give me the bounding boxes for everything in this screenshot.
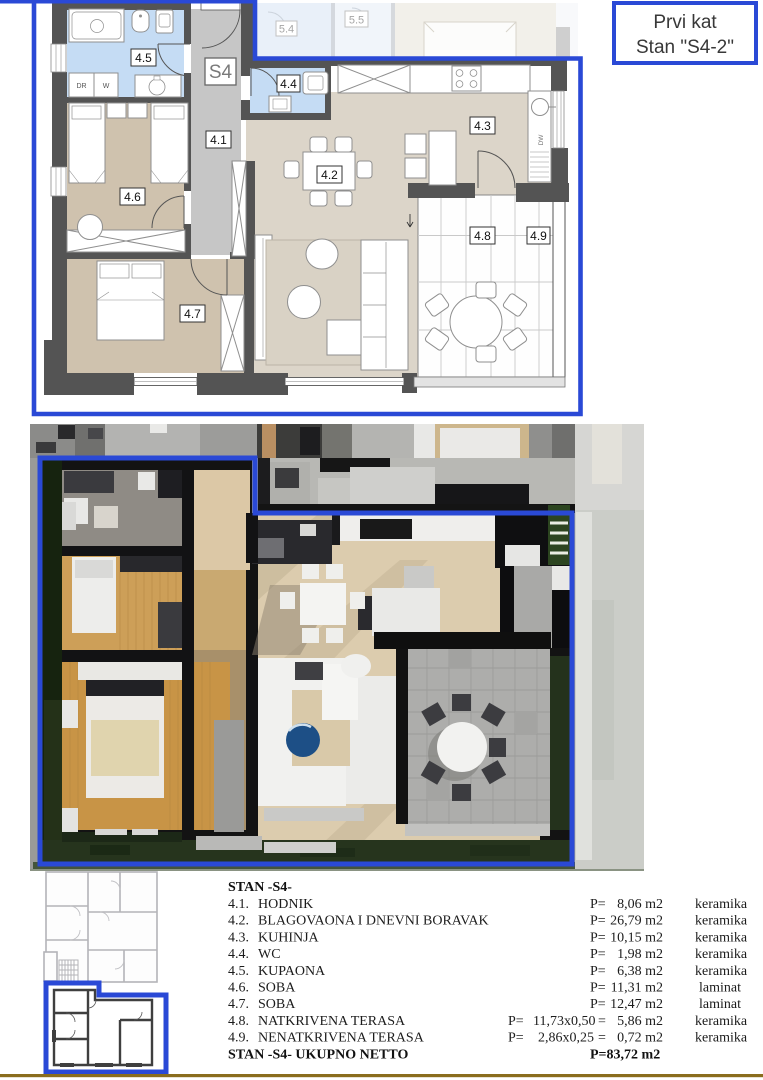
svg-text:SOBA: SOBA [258, 981, 296, 996]
svg-text:4.6: 4.6 [124, 190, 141, 204]
svg-text:P=: P= [508, 1014, 524, 1029]
svg-text:P=: P= [590, 914, 606, 929]
svg-text:P=: P= [590, 930, 606, 945]
svg-text:P=: P= [590, 897, 606, 912]
svg-text:P=: P= [590, 981, 606, 996]
svg-text:Prvi kat: Prvi kat [653, 12, 717, 33]
svg-text:4.9.: 4.9. [228, 1031, 249, 1046]
svg-text:11,73x0,50: 11,73x0,50 [533, 1014, 595, 1029]
svg-text:STAN -S4- UKUPNO NETTO: STAN -S4- UKUPNO NETTO [228, 1047, 408, 1062]
svg-text:keramika: keramika [695, 1031, 748, 1046]
svg-text:4.1.: 4.1. [228, 897, 249, 912]
svg-text:keramika: keramika [695, 947, 748, 962]
svg-text:P=: P= [590, 947, 606, 962]
svg-text:8,06 m2: 8,06 m2 [617, 897, 663, 912]
svg-text:Stan "S4-2": Stan "S4-2" [636, 37, 734, 58]
svg-text:4.5: 4.5 [135, 51, 152, 65]
svg-text:SOBA: SOBA [258, 997, 296, 1012]
svg-text:2,86x0,25: 2,86x0,25 [538, 1031, 594, 1046]
svg-text:keramika: keramika [695, 914, 748, 929]
svg-text:4.6.: 4.6. [228, 981, 249, 996]
svg-text:W: W [103, 83, 110, 90]
svg-text:DW: DW [538, 134, 545, 146]
svg-text:KUPAONA: KUPAONA [258, 964, 326, 979]
svg-text:keramika: keramika [695, 930, 748, 945]
svg-text:4.3: 4.3 [474, 119, 491, 133]
svg-text:laminat: laminat [699, 981, 741, 996]
svg-text:=: = [598, 1014, 606, 1029]
svg-text:5.4: 5.4 [279, 24, 294, 36]
svg-text:keramika: keramika [695, 897, 748, 912]
svg-text:DR: DR [76, 83, 86, 90]
svg-text:4.3.: 4.3. [228, 930, 249, 945]
svg-text:keramika: keramika [695, 964, 748, 979]
svg-text:1,98 m2: 1,98 m2 [617, 947, 663, 962]
svg-text:4.7.: 4.7. [228, 997, 249, 1012]
svg-text:laminat: laminat [699, 997, 741, 1012]
svg-text:NATKRIVENA TERASA: NATKRIVENA TERASA [258, 1014, 406, 1029]
svg-text:4.4.: 4.4. [228, 947, 249, 962]
svg-text:4.5.: 4.5. [228, 964, 249, 979]
svg-text:4.8: 4.8 [474, 229, 491, 243]
svg-text:4.8.: 4.8. [228, 1014, 249, 1029]
svg-text:=: = [598, 1031, 606, 1046]
svg-text:4.9: 4.9 [530, 229, 547, 243]
svg-text:4.7: 4.7 [184, 307, 201, 321]
svg-text:P=: P= [508, 1031, 524, 1046]
svg-text:0,72 m2: 0,72 m2 [617, 1031, 663, 1046]
svg-text:WC: WC [258, 947, 281, 962]
svg-text:26,79 m2: 26,79 m2 [610, 914, 663, 929]
svg-text:P=: P= [590, 964, 606, 979]
svg-text:KUHINJA: KUHINJA [258, 930, 320, 945]
svg-text:11,31 m2: 11,31 m2 [611, 981, 663, 996]
svg-text:5,86 m2: 5,86 m2 [617, 1014, 663, 1029]
svg-text:4.1: 4.1 [210, 133, 227, 147]
svg-text:P=83,72 m2: P=83,72 m2 [590, 1047, 660, 1062]
svg-text:4.2.: 4.2. [228, 914, 249, 929]
svg-text:BLAGOVAONA I DNEVNI BORAVAK: BLAGOVAONA I DNEVNI BORAVAK [258, 914, 489, 929]
svg-text:4.2: 4.2 [321, 168, 338, 182]
svg-text:P=: P= [590, 997, 606, 1012]
svg-text:NENATKRIVENA TERASA: NENATKRIVENA TERASA [258, 1031, 425, 1046]
svg-text:STAN -S4-: STAN -S4- [228, 880, 292, 895]
svg-text:10,15 m2: 10,15 m2 [610, 930, 663, 945]
svg-text:4.4: 4.4 [280, 77, 297, 91]
svg-text:HODNIK: HODNIK [258, 897, 313, 912]
svg-text:S4: S4 [209, 62, 233, 83]
svg-text:6,38 m2: 6,38 m2 [617, 964, 663, 979]
svg-text:5.5: 5.5 [349, 15, 364, 27]
svg-text:keramika: keramika [695, 1014, 748, 1029]
svg-text:12,47 m2: 12,47 m2 [610, 997, 663, 1012]
